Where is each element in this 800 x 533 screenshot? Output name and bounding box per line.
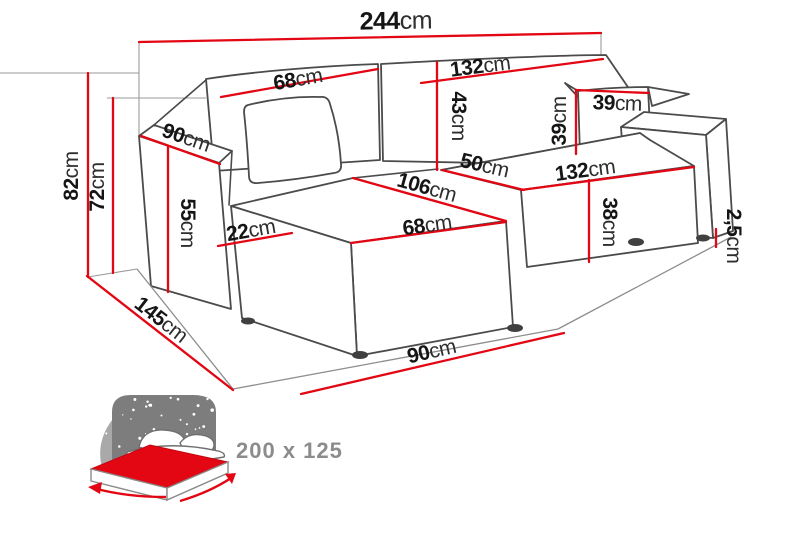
dimension-diagram: 244cm 68cm 132cm 43cm 39cm 39cm 90cm 50c…: [0, 0, 800, 533]
dim-leg-height: 2,5cm: [722, 209, 745, 264]
sofa-bed-icon: [88, 395, 236, 501]
chaise-section: [231, 169, 513, 356]
dim-armrest-height: 55cm: [176, 198, 199, 247]
dim-back-top-height: 72cm: [86, 162, 109, 211]
dim-pillow-width: 39cm: [592, 91, 642, 116]
dim-total-width: 244cm: [359, 6, 432, 35]
dim-chaise-total-depth: 145cm: [130, 292, 192, 347]
dim-total-height: 82cm: [60, 151, 83, 200]
left-pillow: [244, 97, 341, 183]
dim-back-height: 43cm: [447, 91, 470, 140]
dim-pillow-height: 39cm: [548, 96, 571, 145]
sleeping-area-label: 200 x 125: [236, 438, 343, 463]
dim-seat-height: 38cm: [598, 197, 621, 246]
